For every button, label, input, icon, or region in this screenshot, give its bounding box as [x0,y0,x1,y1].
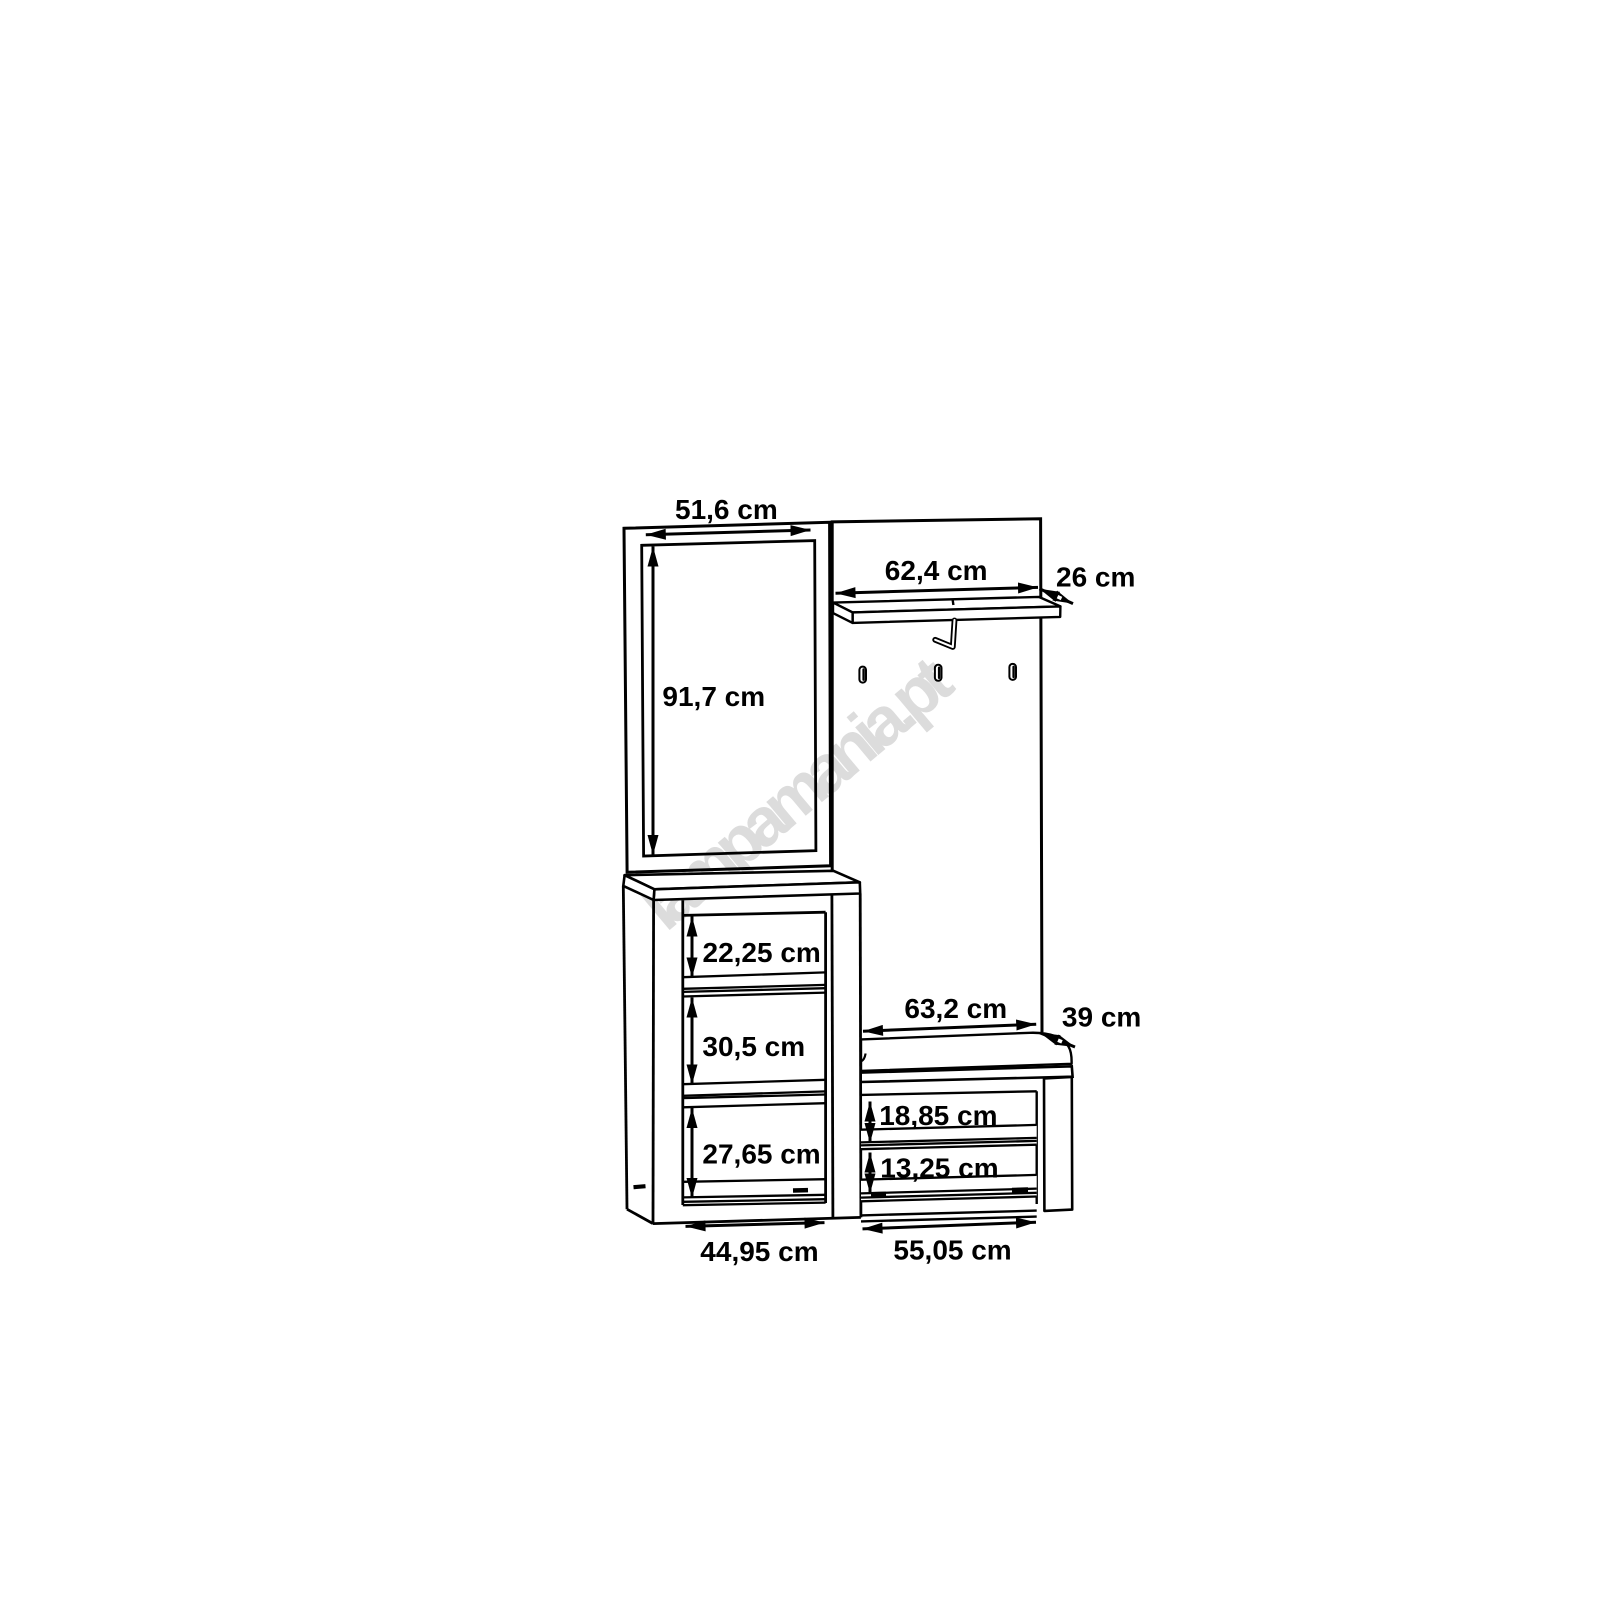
svg-text:44,95 cm: 44,95 cm [700,1236,818,1267]
svg-text:26 cm: 26 cm [1056,562,1135,593]
svg-text:62,4 cm: 62,4 cm [885,555,988,586]
svg-text:18,85 cm: 18,85 cm [879,1100,997,1131]
svg-text:27,65 cm: 27,65 cm [702,1139,820,1170]
svg-text:13,25 cm: 13,25 cm [880,1153,998,1184]
svg-text:55,05 cm: 55,05 cm [893,1235,1011,1266]
svg-text:39 cm: 39 cm [1062,1002,1141,1033]
svg-text:30,5 cm: 30,5 cm [702,1031,805,1062]
svg-text:91,7 cm: 91,7 cm [662,681,765,712]
svg-text:22,25 cm: 22,25 cm [703,937,821,968]
svg-text:63,2 cm: 63,2 cm [904,993,1007,1024]
svg-text:51,6 cm: 51,6 cm [675,494,778,525]
